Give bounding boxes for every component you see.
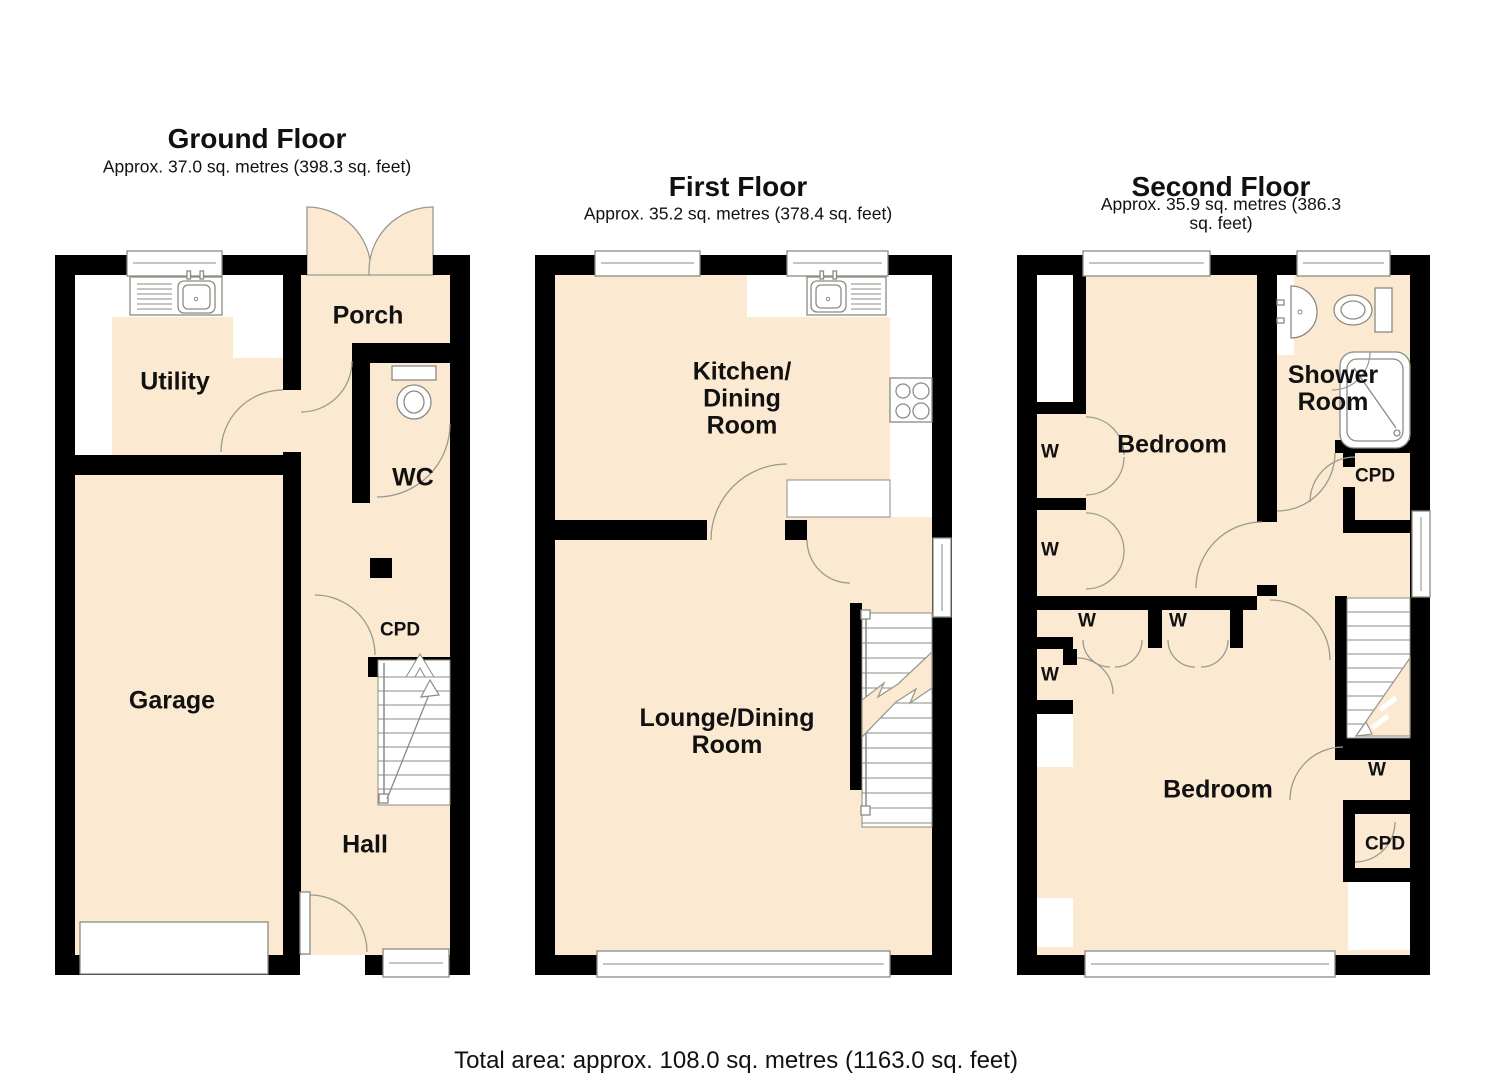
room-label-lounge-dining: Lounge/Dining Room <box>640 705 815 759</box>
room-label-hall: Hall <box>342 832 388 859</box>
ground-floor-title: Ground Floor <box>168 124 347 154</box>
ground-floor-plan <box>55 207 470 977</box>
wardrobe-label-c: W <box>1078 612 1096 633</box>
first-floor-title: First Floor <box>669 172 807 202</box>
wardrobe-label-b: W <box>1041 541 1059 562</box>
front-door-leaf <box>300 892 310 954</box>
room-label-cpd-lower: CPD <box>1365 835 1405 856</box>
room-label-cpd-ground: CPD <box>380 621 420 642</box>
first-floor-subtitle: Approx. 35.2 sq. metres (378.4 sq. feet) <box>584 205 892 224</box>
room-label-cpd-upper: CPD <box>1355 467 1395 488</box>
utility-sink-icon <box>130 271 222 315</box>
total-area-label: Total area: approx. 108.0 sq. metres (11… <box>454 1048 1018 1074</box>
first-stairs-icon <box>861 610 932 827</box>
second-stairs-icon <box>1347 598 1410 738</box>
kitchen-sink-icon <box>807 271 886 315</box>
room-label-kitchen-dining: Kitchen/ Dining Room <box>693 359 792 440</box>
room-label-utility: Utility <box>140 369 209 396</box>
room-label-shower-room: Shower Room <box>1288 362 1378 416</box>
garage-door-icon <box>80 922 268 974</box>
room-label-bedroom-front: Bedroom <box>1117 432 1227 459</box>
room-label-porch: Porch <box>333 303 404 330</box>
floorplan-page: Ground Floor Approx. 37.0 sq. metres (39… <box>0 0 1485 1080</box>
wardrobe-label-a: W <box>1041 443 1059 464</box>
porch-door-sweep-left <box>307 207 371 275</box>
wardrobe-label-d: W <box>1169 612 1187 633</box>
wardrobe-label-e: W <box>1041 666 1059 687</box>
second-floor-subtitle: Approx. 35.9 sq. metres (386.3 sq. feet) <box>1089 195 1353 233</box>
ground-stairs-icon <box>378 654 450 805</box>
hob-icon <box>890 378 932 422</box>
porch-door-sweep-right <box>369 207 433 275</box>
room-label-bedroom-back: Bedroom <box>1163 777 1273 804</box>
ground-floor-subtitle: Approx. 37.0 sq. metres (398.3 sq. feet) <box>103 158 411 177</box>
wardrobe-label-f: W <box>1368 761 1386 782</box>
room-label-wc: WC <box>392 465 434 492</box>
room-label-garage: Garage <box>129 688 215 715</box>
